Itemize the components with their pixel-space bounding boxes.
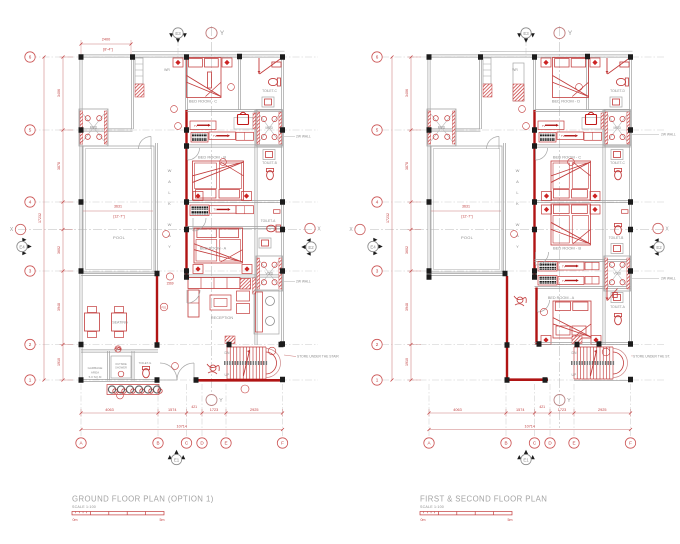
svg-text:17232: 17232 — [386, 213, 390, 223]
svg-text:SCALE 1:100: SCALE 1:100 — [72, 505, 96, 509]
svg-text:FIRST & SECOND FLOOR PLAN: FIRST & SECOND FLOOR PLAN — [420, 495, 547, 504]
svg-text:421: 421 — [191, 405, 197, 409]
svg-text:2925: 2925 — [598, 408, 606, 412]
svg-text:5.0 SQ.M: 5.0 SQ.M — [89, 375, 102, 379]
svg-text:3948: 3948 — [405, 303, 409, 311]
svg-text:4: 4 — [29, 200, 32, 205]
svg-text:W: W — [168, 168, 172, 173]
svg-text:3: 3 — [376, 269, 379, 274]
svg-text:3406: 3406 — [57, 89, 61, 97]
svg-text:K: K — [168, 201, 171, 206]
svg-text:2W WALL: 2W WALL — [661, 133, 676, 137]
svg-text:GARBAGE: GARBAGE — [88, 366, 103, 370]
svg-text:BED ROOM - C: BED ROOM - C — [189, 99, 217, 104]
svg-text:W: W — [168, 222, 172, 227]
svg-text:2: 2 — [376, 342, 379, 347]
svg-text:TV: TV — [213, 134, 217, 138]
svg-text:E1: E1 — [174, 457, 180, 462]
svg-text:2: 2 — [29, 342, 32, 347]
svg-text:[8'-4"]: [8'-4"] — [103, 48, 113, 52]
svg-text:Y: Y — [516, 244, 519, 249]
svg-text:4063: 4063 — [105, 408, 113, 412]
svg-text:F: F — [281, 441, 284, 446]
svg-text:E1: E1 — [523, 457, 529, 462]
svg-text:A: A — [516, 179, 519, 184]
svg-text:DN: DN — [572, 351, 577, 355]
svg-text:1569: 1569 — [166, 282, 173, 286]
svg-text:WR: WR — [164, 68, 170, 72]
svg-text:GROUND FLOOR PLAN (OPTION 1): GROUND FLOOR PLAN (OPTION 1) — [72, 495, 214, 504]
svg-text:TV: TV — [561, 134, 565, 138]
svg-text:3602: 3602 — [57, 246, 61, 254]
svg-text:TOILET-A: TOILET-A — [610, 305, 625, 309]
svg-text:STORE UNDER THE STAIR: STORE UNDER THE STAIR — [297, 355, 339, 359]
svg-text:Y: Y — [219, 398, 223, 404]
svg-text:TOILET-A: TOILET-A — [261, 219, 276, 223]
svg-text:MOD: MOD — [438, 126, 446, 130]
svg-text:VOID: VOID — [265, 272, 273, 276]
svg-text:TOILET-D: TOILET-D — [610, 89, 625, 93]
svg-text:10714: 10714 — [176, 425, 187, 429]
svg-text:3: 3 — [29, 269, 32, 274]
svg-text:4063: 4063 — [453, 408, 461, 412]
svg-text:0m: 0m — [421, 518, 426, 522]
svg-text:3406: 3406 — [405, 89, 409, 97]
svg-text:VOID: VOID — [613, 272, 621, 276]
svg-text:A: A — [168, 179, 171, 184]
svg-text:0m: 0m — [73, 518, 78, 522]
svg-text:5m: 5m — [160, 518, 165, 522]
svg-text:UP: UP — [225, 373, 230, 377]
svg-text:1: 1 — [29, 378, 32, 383]
svg-text:TOILET-G: TOILET-G — [139, 361, 152, 365]
svg-text:3602: 3602 — [405, 246, 409, 254]
svg-text:5m: 5m — [508, 518, 513, 522]
svg-text:3631: 3631 — [114, 205, 122, 209]
svg-text:MOD: MOD — [266, 126, 274, 130]
svg-text:E2: E2 — [656, 245, 662, 250]
svg-text:BED ROOM - D: BED ROOM - D — [552, 99, 580, 104]
svg-text:2925: 2925 — [250, 408, 258, 412]
svg-text:K: K — [516, 201, 519, 206]
svg-text:4: 4 — [376, 200, 379, 205]
svg-text:1574: 1574 — [168, 408, 176, 412]
svg-text:E4: E4 — [19, 244, 25, 249]
svg-text:3948: 3948 — [57, 303, 61, 311]
svg-text:Y: Y — [168, 244, 171, 249]
svg-text:421: 421 — [539, 405, 545, 409]
svg-text:5: 5 — [376, 128, 379, 133]
svg-text:2W WALL: 2W WALL — [661, 277, 676, 281]
svg-text:E: E — [224, 441, 227, 446]
svg-text:POOL: POOL — [113, 235, 126, 240]
svg-text:TOILET-B: TOILET-B — [262, 161, 277, 165]
svg-text:TOILET-B: TOILET-B — [609, 236, 624, 240]
svg-text:DN: DN — [225, 351, 230, 355]
svg-text:BED ROOM - C: BED ROOM - C — [553, 155, 581, 160]
svg-text:UP: UP — [572, 373, 577, 377]
svg-text:STORE UNDER THE ST.: STORE UNDER THE ST. — [633, 355, 670, 359]
svg-text:10714: 10714 — [524, 425, 535, 429]
svg-text:E3: E3 — [523, 31, 529, 36]
svg-text:MOD: MOD — [614, 126, 622, 130]
svg-text:BED ROOM - B: BED ROOM - B — [553, 246, 581, 251]
svg-text:3878: 3878 — [405, 162, 409, 170]
svg-text:1910: 1910 — [405, 358, 409, 366]
svg-text:6: 6 — [29, 55, 32, 60]
svg-text:1723: 1723 — [558, 408, 566, 412]
svg-text:17232: 17232 — [38, 213, 42, 223]
svg-text:6: 6 — [376, 55, 379, 60]
svg-text:1574: 1574 — [516, 408, 524, 412]
svg-text:OUTSIDE: OUTSIDE — [115, 362, 127, 366]
svg-text:2W WALL: 2W WALL — [296, 280, 311, 284]
svg-text:TV: TV — [214, 208, 218, 212]
svg-text:5: 5 — [29, 128, 32, 133]
svg-text:E3: E3 — [175, 31, 181, 36]
svg-text:F: F — [629, 441, 632, 446]
svg-text:BED ROOM - A: BED ROOM - A — [548, 296, 575, 300]
svg-text:BED ROOM - B: BED ROOM - B — [198, 155, 226, 160]
svg-text:BED ROOM - A: BED ROOM - A — [200, 247, 227, 251]
svg-text:1723: 1723 — [210, 408, 218, 412]
svg-text:MOD: MOD — [90, 126, 98, 130]
svg-text:TOILET-C: TOILET-C — [262, 89, 277, 93]
svg-text:E4: E4 — [370, 244, 376, 249]
svg-text:SEATING: SEATING — [112, 321, 128, 325]
svg-text:RECEPTION: RECEPTION — [211, 316, 233, 320]
svg-text:Y: Y — [568, 30, 573, 37]
svg-text:1910: 1910 — [57, 358, 61, 366]
svg-text:TOILET-C: TOILET-C — [610, 161, 625, 165]
svg-text:1: 1 — [376, 378, 379, 383]
svg-text:AREA: AREA — [91, 371, 99, 375]
svg-text:2400: 2400 — [102, 38, 110, 42]
svg-text:W: W — [516, 222, 520, 227]
svg-text:[12'-7"]: [12'-7"] — [461, 215, 472, 219]
svg-text:SCALE 1:100: SCALE 1:100 — [420, 505, 444, 509]
svg-text:[12'-7"]: [12'-7"] — [113, 215, 124, 219]
svg-text:B: B — [504, 441, 507, 446]
svg-text:3631: 3631 — [462, 205, 470, 209]
svg-text:Y: Y — [567, 398, 571, 404]
svg-text:B: B — [156, 441, 159, 446]
svg-text:W: W — [516, 168, 520, 173]
svg-text:POOL: POOL — [461, 235, 474, 240]
svg-text:2W WALL: 2W WALL — [296, 135, 311, 139]
svg-text:E: E — [572, 441, 575, 446]
svg-text:3878: 3878 — [57, 162, 61, 170]
svg-text:FG1: FG1 — [161, 305, 167, 309]
svg-text:SHOWER: SHOWER — [115, 366, 127, 370]
svg-text:E2: E2 — [308, 245, 314, 250]
svg-text:Y: Y — [220, 30, 225, 37]
